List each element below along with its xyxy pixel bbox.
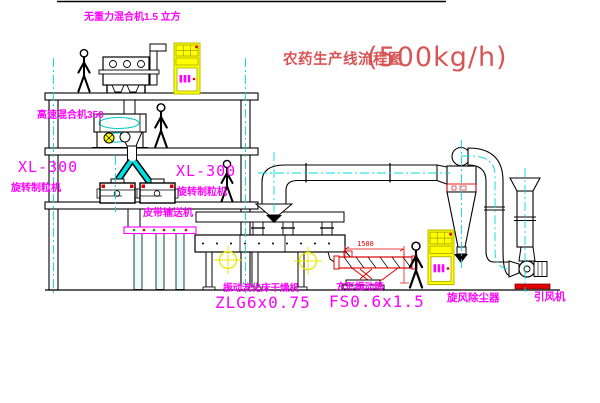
label-cyclone: 旋风除尘器 (447, 293, 500, 304)
induced-fan (509, 247, 550, 289)
dimension-1500: 1500 (357, 241, 374, 248)
label-high-speed-mixer: 高速混合机350 (37, 111, 104, 121)
control-cabinet-lower (428, 230, 454, 285)
diagram-title-capacity: (500kg/h) (367, 44, 508, 71)
person-figure-4 (410, 242, 422, 287)
gravity-mixer-machine (99, 44, 166, 115)
label-granulator-right-name: 旋转制粒机 (177, 188, 227, 198)
label-granulator-right-model: XL-300 (176, 164, 236, 179)
belt-conveyor-machine (124, 209, 196, 290)
control-cabinet-upper (174, 43, 200, 94)
floor-slab-1 (45, 93, 258, 100)
granulator-left-machine (97, 179, 138, 203)
label-granulator-left-name: 旋转制粒机 (11, 184, 61, 194)
label-screen-model: FS0.6x1.5 (329, 294, 425, 310)
fluid-bed-dryer-machine (195, 212, 352, 290)
label-dryer-model: ZLG6x0.75 (215, 295, 311, 311)
person-figure-1 (78, 50, 89, 92)
cad-process-diagram: 农药生产线流程图 (500kg/h) 无重力混合机1.5 立方 高速混合机350… (0, 0, 600, 403)
granulator-right-machine (137, 179, 178, 203)
label-fan: 引风机 (534, 292, 566, 303)
label-gravity-mixer: 无重力混合机1.5 立方 (84, 13, 181, 23)
floor-slab-2 (45, 148, 258, 155)
person-figure-2 (155, 104, 167, 147)
label-belt-conveyor: 皮带输送机 (143, 209, 193, 219)
label-granulator-left-model: XL-300 (18, 160, 78, 175)
